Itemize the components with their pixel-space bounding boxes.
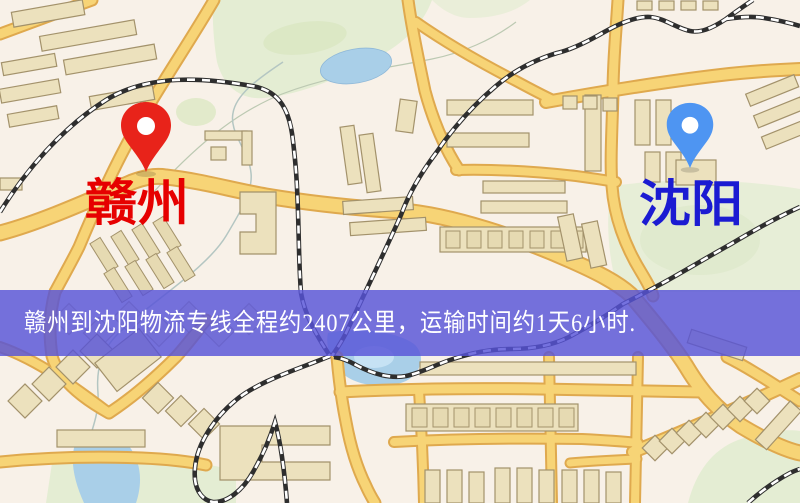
destination-city-label: 沈阳 [639,176,743,232]
destination-pin-hole [682,117,699,134]
banner-text: 赣州到沈阳物流专线全程约2407公里，运输时间约1天6小时. [24,309,636,337]
origin-pin-hole [137,117,155,135]
map-canvas[interactable]: 赣州到沈阳物流专线全程约2407公里，运输时间约1天6小时. 赣州 沈阳 [0,0,800,503]
map-screenshot: 赣州到沈阳物流专线全程约2407公里，运输时间约1天6小时. 赣州 沈阳 [0,0,800,503]
route-banner: 赣州到沈阳物流专线全程约2407公里，运输时间约1天6小时. [0,290,800,356]
origin-city-label: 赣州 [85,175,189,231]
